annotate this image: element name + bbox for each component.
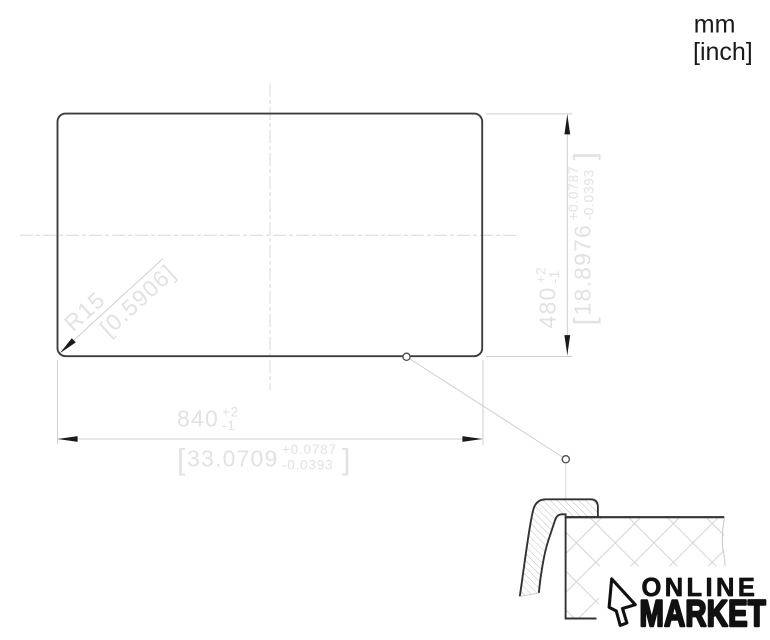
svg-text:840: 840 (177, 406, 219, 432)
svg-text:-1: -1 (222, 418, 236, 433)
svg-text:-0.0393: -0.0393 (582, 169, 597, 220)
svg-text:33.0709: 33.0709 (187, 446, 279, 472)
svg-text:+0.0787: +0.0787 (566, 166, 581, 221)
svg-text:[inch]: [inch] (693, 38, 753, 66)
svg-text:]: ] (569, 152, 602, 160)
svg-text:-0.0393: -0.0393 (282, 458, 333, 473)
svg-text:[: [ (177, 444, 186, 477)
svg-text:[: [ (569, 317, 602, 326)
svg-text:480: 480 (535, 287, 561, 329)
svg-text:-1: -1 (547, 270, 562, 284)
svg-text:]: ] (342, 444, 350, 477)
svg-text:MARKET: MARKET (640, 594, 767, 635)
svg-text:mm: mm (694, 11, 736, 39)
svg-text:18.8976: 18.8976 (570, 224, 596, 316)
svg-text:+0.0787: +0.0787 (282, 442, 337, 457)
